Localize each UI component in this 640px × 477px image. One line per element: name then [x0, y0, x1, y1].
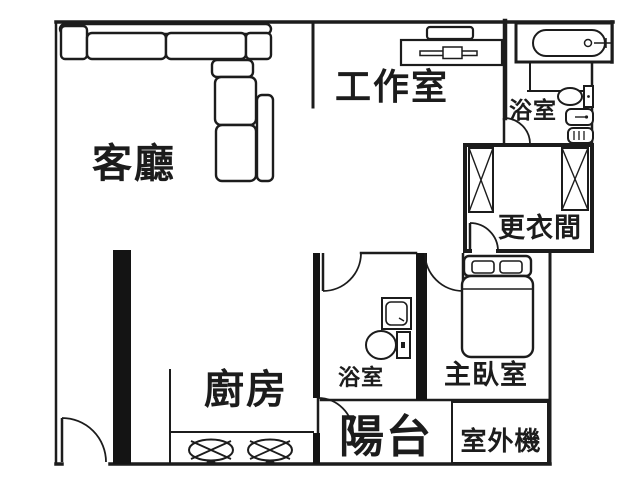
wardrobe-right — [562, 148, 588, 210]
room-label-kitchen: 廚房 — [204, 367, 288, 412]
room-label-outdoor-unit: 室外機 — [460, 426, 541, 456]
bathtub-drain — [585, 40, 592, 47]
wardrobe-left — [469, 148, 493, 212]
drain-grate — [568, 128, 593, 143]
bed — [462, 256, 533, 357]
pillow-left — [472, 261, 494, 273]
wall-block-bath2-left-upper — [313, 253, 320, 398]
room-label-bathroom-bottom: 浴室 — [338, 365, 384, 390]
toilet-top — [558, 88, 582, 105]
room-label-dressing: 更衣間 — [498, 212, 582, 243]
dressing-room-door — [470, 223, 498, 251]
room-label-bathroom-top: 浴室 — [509, 97, 557, 123]
wall-block-bath2-bedroom — [416, 253, 427, 400]
bed-mattress — [462, 276, 533, 357]
desk-and-chair — [401, 27, 502, 65]
room-label-balcony: 陽台 — [339, 411, 433, 462]
floor-plan-drawing: 客廳 工作室 浴室 更衣間 廚房 浴室 主臥室 陽台 室外機 — [0, 0, 640, 477]
sink-bottom-basin — [386, 302, 407, 325]
master-bedroom-door — [425, 253, 463, 291]
bathroom-bottom-fixtures — [366, 298, 411, 359]
chair — [427, 27, 473, 39]
floor-plan-page: 客廳 工作室 浴室 更衣間 廚房 浴室 主臥室 陽台 室外機 — [0, 0, 640, 477]
wall-block-bath2-left-lower — [313, 433, 320, 464]
entrance-door — [62, 418, 106, 462]
toilet-bottom — [366, 331, 396, 359]
stove — [189, 440, 292, 466]
room-label-studio: 工作室 — [335, 66, 449, 107]
burner-right — [248, 440, 292, 466]
bathroom-top-fixtures — [558, 86, 593, 143]
burner-left — [189, 440, 233, 466]
bathtub-area — [516, 23, 612, 62]
desk-monitor — [443, 47, 462, 59]
wall-block-kitchen — [113, 250, 131, 464]
wardrobes — [469, 148, 588, 212]
wall-bath-niche-step — [528, 62, 592, 91]
room-label-master-bedroom: 主臥室 — [444, 359, 528, 390]
pillow-right — [500, 261, 522, 273]
bathroom-bottom-door — [323, 253, 361, 291]
room-label-living: 客廳 — [92, 141, 176, 186]
